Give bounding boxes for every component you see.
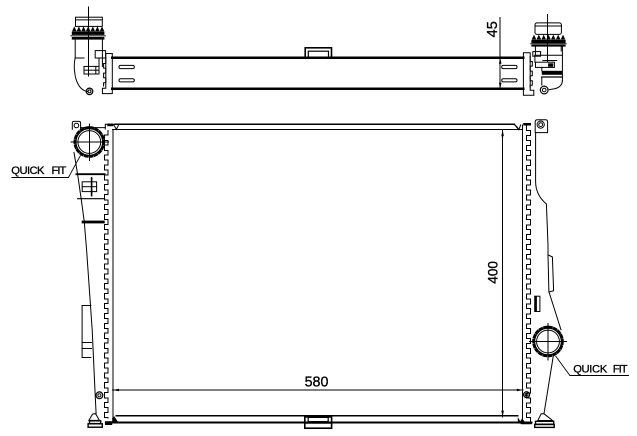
svg-text:FIT: FIT xyxy=(613,363,628,375)
svg-text:580: 580 xyxy=(305,375,329,391)
svg-text:QUICK: QUICK xyxy=(573,363,608,375)
svg-text:45: 45 xyxy=(485,21,501,37)
svg-text:QUICK: QUICK xyxy=(11,165,45,177)
svg-text:400: 400 xyxy=(485,261,500,284)
svg-text:FIT: FIT xyxy=(52,165,67,177)
